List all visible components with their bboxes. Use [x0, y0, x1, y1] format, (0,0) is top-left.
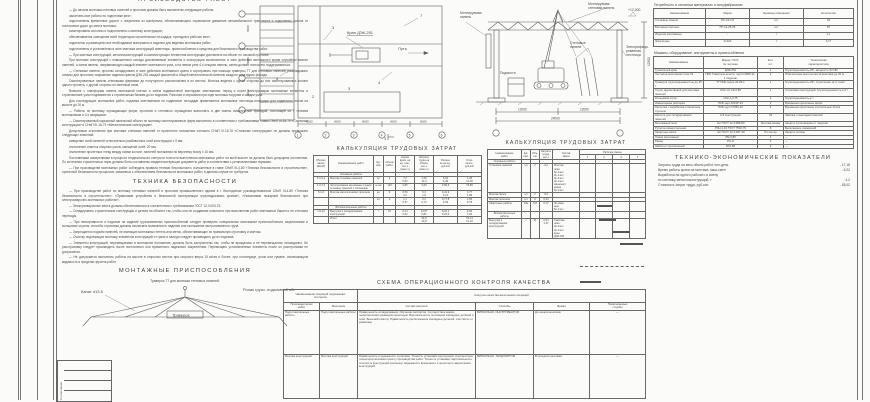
plan-dim-bottom-2: 6000 — [334, 120, 341, 124]
labor-calc-1-row: 4-0-7,2Электросварка монтажных стыков ст… — [314, 183, 482, 190]
labor-calc-1-header-row: Обосно- вание (ЕНиР)Наименование работ Е… — [314, 156, 482, 173]
materials-row: ЭлектродыЭ-42Ат0,17 — [654, 40, 854, 47]
plan-callout-5: 5 — [276, 76, 279, 81]
tep-line: Стоимость затрат труда, руб-коп. - 55,02 — [658, 183, 850, 188]
plan-dim-left-3: 6000 — [246, 89, 250, 96]
qc-section: СХЕМА ОПЕРАЦИОННОГО КОНТРОЛЯ КАЧЕСТВА На… — [283, 280, 645, 399]
resources-page-title: МАТЕРИАЛЬНО-ТЕХНИЧЕСКИЕ РЕСУРСЫ — [652, 0, 854, 1]
labor-calc-1-title: КАЛЬКУЛЯЦИЯ ТРУДОВЫХ ЗАТРАТ — [313, 146, 481, 152]
plan-crane-label: Кран ДЭК-251 — [347, 30, 374, 35]
elev-dim-1: 12000 — [518, 108, 527, 112]
tep-value: - 6,22 — [842, 168, 850, 173]
tep-label: Стоимость затрат труда, руб-коп. — [658, 183, 709, 188]
labor-schedule-row: Установка панелейшт2 4,2Монтаж- ники: 5р… — [488, 164, 646, 193]
frame-margin-line-3 — [37, 0, 38, 400]
instruction-paragraph: отклонение отметок опорных узлов, смещен… — [62, 145, 308, 149]
machines-row: Кассета для складирования панелейК-8 кон… — [654, 114, 854, 122]
machines-row: Траверса грузоподъемностью до 25 тТ7 ПКБ… — [654, 81, 854, 89]
elev-panels-label: Стеновыепанели — [570, 41, 586, 49]
tep-title: ТЕХНИКО-ЭКОНОМИЧЕСКИЕ ПОКАЗАТЕЛИ — [652, 155, 854, 161]
materials-row: Изделия монтажные-т1,1 — [654, 33, 854, 40]
traverse-rope-label: Канат d13,5 — [81, 289, 104, 294]
plan-callout-3b: 3 — [348, 86, 351, 91]
plan-drawing: Кран ДЭК-251 Путь 6000 6000 6000 6000 60… — [232, 0, 458, 142]
safety-paragraph: — При неисправности и подъеме на изделие… — [62, 220, 308, 228]
elev-dim-total: 24000 — [551, 117, 560, 121]
plan-axis-4: 4 — [381, 134, 383, 138]
elev-scaffold-label: Подмости — [500, 71, 516, 75]
qc-header-row-1: Наименование операций подлежащих контрол… — [284, 290, 646, 303]
labor-calc-1-row: 5-1-6,аМонтаж стеновых панелейшт2 7,2 0,… — [314, 176, 482, 183]
safety-heading: ТЕХНИКА БЕЗОПАСНОСТИ — [62, 179, 308, 187]
plan-axis-6: 6 — [441, 134, 443, 138]
instruction-paragraph: отклонение пролетных гнезд между осями к… — [62, 150, 308, 154]
elev-mounted-top-label: Монтируемаястеновая панель — [588, 2, 615, 10]
machines-row: Расчалка с карабином и канатным стропомП… — [654, 106, 854, 114]
plan-dim-bottom-5: 6000 — [420, 120, 427, 124]
instruction-paragraph: — При производстве монтажных работ соблю… — [62, 166, 308, 174]
elevation-drawing: Монтируемаяпанель Монтируемаястеновая па… — [458, 0, 660, 142]
traverse-label: Траверса — [172, 313, 190, 318]
machines-caption: Машины, оборудование, инструменты и прис… — [654, 51, 854, 55]
labor-schedule-row: Сварочные работы10м6,8 0,17Эл.свар- щик … — [488, 201, 646, 211]
plan-callout-2: 2 — [312, 94, 315, 99]
rigging-subtitle: Траверса Т7 для монтажа стеновых панелей… — [62, 279, 308, 283]
labor-schedule-row: Вспомогательные работы — [488, 211, 646, 218]
plan-callout-7: 7 — [420, 13, 423, 18]
elev-ladder-label: Электрифици-рованнаялестница — [626, 45, 649, 57]
materials-row: Бетонные прогоныПГ-12-25-65шт.87 — [654, 26, 854, 33]
frame-border-right-b — [862, 0, 863, 400]
tep-value: - 55,02 — [840, 183, 850, 188]
materials-row: Стеновые панелиПС-24-2,5шт.34 — [654, 19, 854, 26]
frame-border-left-a — [53, 0, 54, 400]
instruction-paragraph: Постоянными измерениями в процессе геоде… — [62, 156, 308, 164]
materials-caption: Потребность в основных материалах и полу… — [654, 3, 854, 7]
frame-margin-line-2 — [20, 0, 21, 400]
safety-paragraph: — Очистку подлежащих монтажу элементов к… — [62, 235, 308, 239]
labor-calc-1-row: 1-5-12Выгрузка и складирование конструкц… — [314, 209, 482, 216]
safety-paragraph: — Складировать строительные конструкции … — [62, 209, 308, 217]
safety-paragraph: — Электросварочные места должны обеспечи… — [62, 204, 308, 208]
plan-dim-left-1: 6000 — [246, 25, 250, 32]
machines-table: Наименование Марка, ГОСТ, № чертежа Кол.… — [653, 56, 854, 149]
plan-axis-2: 2 — [325, 134, 327, 138]
qc-row: Подготовительные работыПодготовительные … — [284, 310, 646, 354]
plan-dim-bottom-1: 6000 — [306, 120, 313, 124]
labor-schedule-title: КАЛЬКУЛЯЦИЯ ТРУДОВЫХ ЗАТРАТ — [487, 140, 645, 146]
traverse-drawing: Канат d13,5 Ролик грузо- подъемной обойм… — [75, 285, 295, 327]
plan-section-mark: 1 — [384, 136, 387, 141]
safety-paragraph: — При производстве работ по монтажу стен… — [62, 189, 308, 202]
qc-header-row-2: Производителем работМастером Состав конт… — [284, 303, 646, 311]
safety-paragraph: — Не допускается выполнять работы на выс… — [62, 255, 308, 263]
labor-schedule-table: КАЛЬКУЛЯЦИЯ ТРУДОВЫХ ЗАТРАТ Наименование… — [487, 140, 645, 239]
qc-row: Монтаж конструкцийМонтаж конструкцийПрав… — [284, 354, 646, 398]
plan-dim-bottom-4: 6000 — [390, 120, 397, 124]
safety-instructions: — При производстве работ по монтажу стен… — [62, 189, 308, 263]
machines-row: Строп двухветвевой для монтажа панелей2С… — [654, 89, 854, 97]
plan-dim-left-2: 6000 — [246, 57, 250, 64]
plan-axis-3: 3 — [353, 134, 355, 138]
safety-paragraph: — Элементы конструкций, перемещаемые в м… — [62, 241, 308, 254]
labor-calc-table-1: КАЛЬКУЛЯЦИЯ ТРУДОВЫХ ЗАТРАТ Обосно- вани… — [313, 146, 481, 224]
qc-title: СХЕМА ОПЕРАЦИОННОГО КОНТРОЛЯ КАЧЕСТВА — [283, 280, 645, 286]
safety-paragraph: — Запрещается подъем панелей, не имеющих… — [62, 230, 308, 234]
frame-margin-line-1 — [18, 0, 19, 400]
tep-lines: Затраты труда на весь объем работ, чел-д… — [658, 163, 850, 188]
qc-head-right: Контроль качества выполнения операций — [358, 290, 646, 303]
plan-dim-bottom-3: 6000 — [362, 120, 369, 124]
machines-row: Лестница монтажная типа Л1ПКБ Главсталь-… — [654, 73, 854, 81]
plan-callout-3: 3 — [332, 25, 335, 30]
labor-calc-1-row: шт2 1,1 0,372,2 0,740-77,8 0-391-56 0-78 — [314, 198, 482, 205]
elev-dim-right: 12300 — [647, 57, 651, 66]
frame-border-left-b — [56, 0, 57, 400]
plan-callout-4: 4 — [378, 80, 381, 85]
labor-calc-1-row: Итого 33,8 19,893-14 21-10 — [314, 216, 482, 223]
materials-header-row: Наименование Марка Единица измерения Кол… — [654, 9, 854, 19]
machines-row: Шаблон строительный9ХХ-802— — [654, 144, 854, 148]
machines-header-row: Наименование Марка, ГОСТ, № чертежа Кол.… — [654, 57, 854, 69]
materials-table: Наименование Марка Единица измерения Кол… — [653, 8, 854, 47]
plan-axis-5: 5 — [409, 134, 411, 138]
elev-mounted-left-label: Монтируемаяпанель — [460, 11, 482, 19]
labor-calc-1-row: 5-1-6Монтаж металлических прогоновшт9 0,… — [314, 191, 482, 198]
rigging-heading: МОНТАЖНЫЕ ПРИСПОСОБЛЕНИЯ — [62, 268, 308, 276]
labor-schedule-row: Выгрузка и складирование конструкцийт31 … — [488, 219, 646, 239]
elev-level-mark: +12,000 — [628, 8, 640, 12]
frame-border-right-a — [857, 0, 858, 400]
plan-axis-1: 1 — [297, 134, 299, 138]
plan-path-label: Путь — [398, 46, 407, 51]
resources-column: МАТЕРИАЛЬНО-ТЕХНИЧЕСКИЕ РЕСУРСЫ Потребно… — [652, 0, 854, 400]
elev-dim-2: 12000 — [580, 108, 589, 112]
qc-head-left: Наименование операций подлежащих контрол… — [284, 290, 358, 303]
